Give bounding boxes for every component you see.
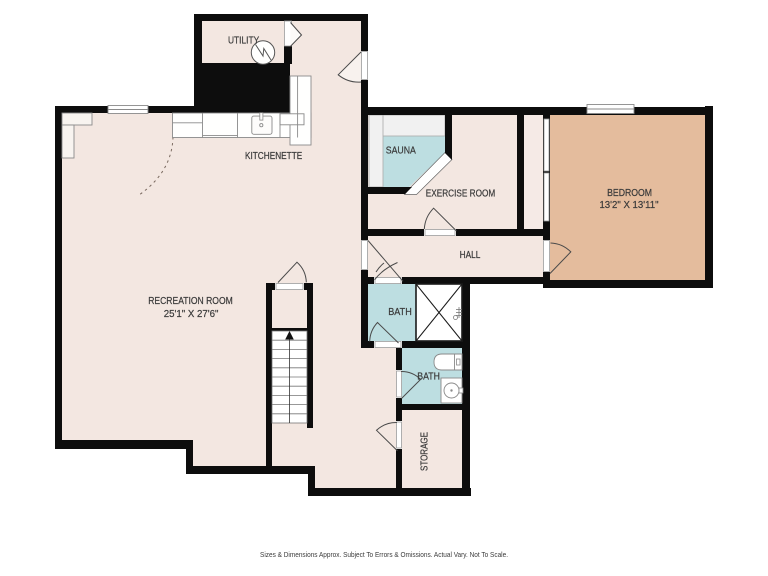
svg-text:BATH: BATH	[388, 306, 412, 318]
svg-text:EXERCISE ROOM: EXERCISE ROOM	[426, 187, 496, 199]
svg-text:BEDROOM: BEDROOM	[607, 187, 652, 199]
svg-text:13'2" X 13'11": 13'2" X 13'11"	[599, 199, 658, 211]
svg-text:UTILITY: UTILITY	[228, 35, 259, 47]
svg-text:Sizes & Dimensions Approx. Sub: Sizes & Dimensions Approx. Subject To Er…	[260, 550, 508, 559]
svg-text:STORAGE: STORAGE	[418, 432, 430, 471]
svg-text:SAUNA: SAUNA	[386, 145, 416, 157]
svg-text:HALL: HALL	[460, 249, 481, 261]
svg-text:KITCHENETTE: KITCHENETTE	[245, 150, 302, 162]
svg-text:RECREATION ROOM: RECREATION ROOM	[148, 295, 233, 307]
svg-text:BATH: BATH	[417, 370, 440, 382]
svg-text:25'1" X 27'6": 25'1" X 27'6"	[164, 308, 219, 320]
